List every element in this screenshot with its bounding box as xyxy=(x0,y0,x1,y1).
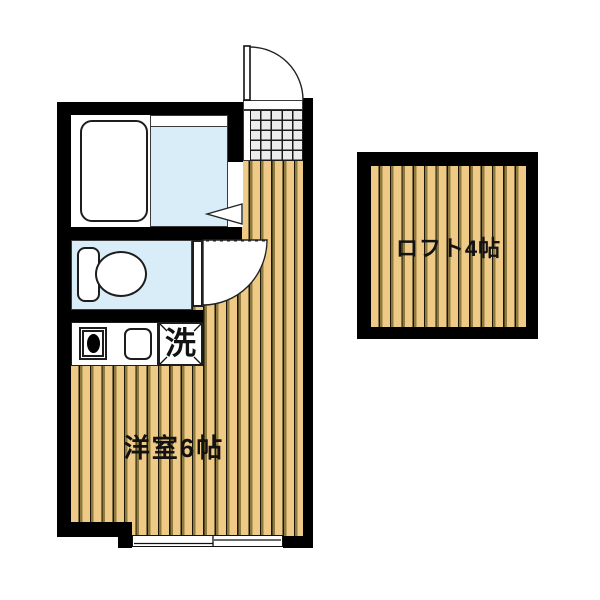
door-swing-overlay xyxy=(0,0,600,600)
entrance-door-panel-icon xyxy=(244,46,250,100)
bathroom-door-triangle-icon xyxy=(207,204,242,224)
loft-label: ロフト4帖 xyxy=(371,231,526,263)
sliding-window-sash-lines xyxy=(134,536,281,547)
toilet-door-swing-icon xyxy=(203,240,267,305)
main-room-label: 洋室6帖 xyxy=(94,428,254,465)
washing-machine-corner-ticks xyxy=(160,324,201,364)
floorplan-canvas: 洗 xyxy=(0,0,600,600)
entrance-door-swing-icon xyxy=(250,47,303,100)
